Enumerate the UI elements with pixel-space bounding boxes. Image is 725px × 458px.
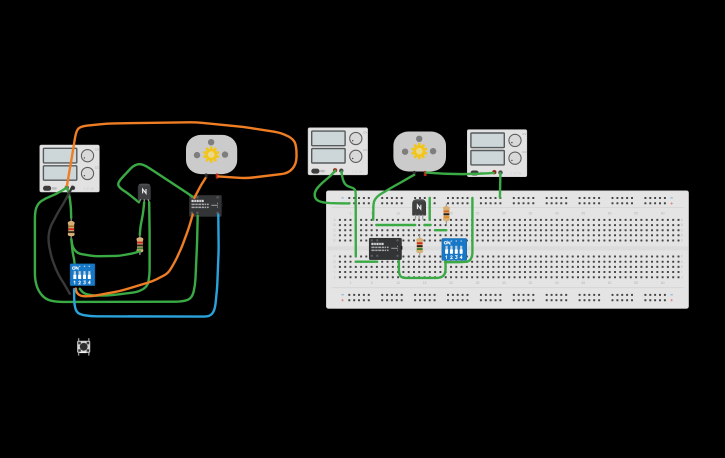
svg-text:40: 40 <box>555 212 559 216</box>
svg-text:50: 50 <box>608 212 612 216</box>
svg-text:I: I <box>334 270 335 274</box>
svg-text:50: 50 <box>608 281 612 285</box>
svg-text:35: 35 <box>529 212 533 216</box>
svg-text:B: B <box>681 223 683 227</box>
svg-text:1: 1 <box>350 281 352 285</box>
svg-text:40: 40 <box>555 281 559 285</box>
svg-text:E: E <box>334 239 336 243</box>
svg-text:25: 25 <box>476 212 480 216</box>
svg-text:15: 15 <box>423 281 427 285</box>
svg-text:30: 30 <box>502 281 506 285</box>
svg-text:30: 30 <box>502 212 506 216</box>
svg-text:ON: ON <box>321 170 325 173</box>
svg-text:10: 10 <box>396 281 400 285</box>
svg-text:60: 60 <box>661 212 665 216</box>
svg-text:60: 60 <box>661 281 665 285</box>
svg-text:E: E <box>681 239 683 243</box>
svg-text:B: B <box>334 223 336 227</box>
svg-text:7.37 W: 7.37 W <box>352 170 364 174</box>
svg-text:10: 10 <box>396 212 400 216</box>
svg-text:1: 1 <box>350 212 352 216</box>
svg-text:7.37 W: 7.37 W <box>511 172 523 176</box>
svg-text:35: 35 <box>529 281 533 285</box>
svg-text:45: 45 <box>581 281 585 285</box>
svg-text:I: I <box>681 270 682 274</box>
svg-text:ON: ON <box>52 187 56 190</box>
svg-text:F: F <box>681 255 683 259</box>
svg-text:CV: CV <box>95 148 99 152</box>
svg-text:25: 25 <box>476 281 480 285</box>
svg-text:55: 55 <box>634 281 638 285</box>
svg-text:CV: CV <box>363 130 367 134</box>
svg-text:20: 20 <box>449 281 453 285</box>
svg-text:20: 20 <box>449 212 453 216</box>
svg-text:45: 45 <box>581 212 585 216</box>
svg-text:7.37 W: 7.37 W <box>83 187 95 191</box>
svg-text:CV: CV <box>522 132 526 136</box>
svg-text:55: 55 <box>634 212 638 216</box>
svg-text:5: 5 <box>371 281 373 285</box>
svg-text:F: F <box>334 255 336 259</box>
